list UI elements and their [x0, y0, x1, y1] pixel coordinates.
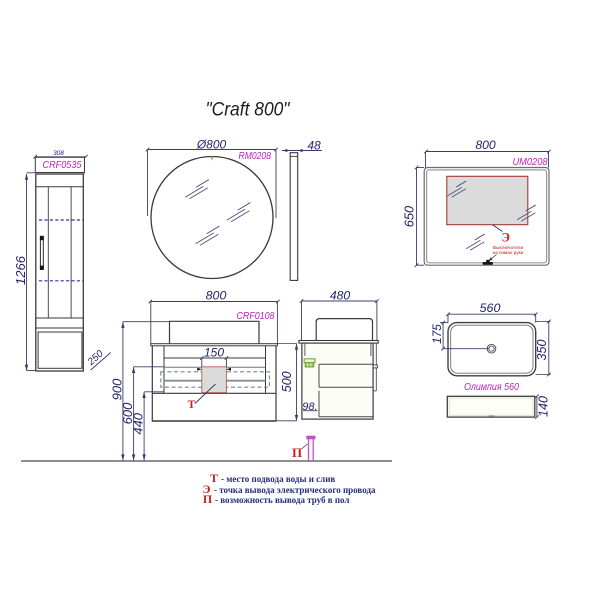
svg-text:Т: Т — [188, 399, 196, 411]
svg-text:на взмах руки: на взмах руки — [493, 251, 524, 256]
svg-text:CRF0108: CRF0108 — [237, 310, 275, 322]
svg-text:308: 308 — [53, 150, 64, 157]
svg-text:800: 800 — [206, 288, 227, 302]
svg-text:- точка вывода электрического: - точка вывода электрического провода — [214, 485, 376, 495]
svg-text:560: 560 — [480, 301, 501, 315]
svg-text:140: 140 — [536, 396, 550, 417]
svg-text:П: П — [203, 492, 213, 506]
svg-text:UM0208: UM0208 — [513, 156, 548, 168]
svg-text:48: 48 — [307, 139, 321, 153]
svg-text:1266: 1266 — [13, 255, 28, 285]
svg-text:150: 150 — [204, 345, 224, 359]
svg-text:Ø800: Ø800 — [196, 138, 227, 152]
svg-text:250: 250 — [85, 348, 106, 368]
svg-text:98.: 98. — [302, 401, 317, 413]
svg-text:- возможность вывода труб в по: - возможность вывода труб в пол — [215, 495, 349, 505]
svg-text:440: 440 — [131, 412, 146, 434]
svg-text:480: 480 — [330, 288, 351, 302]
svg-text:"Craft 800": "Craft 800" — [206, 99, 291, 121]
svg-text:650: 650 — [401, 205, 416, 227]
svg-text:П: П — [292, 445, 302, 460]
svg-text:350: 350 — [535, 340, 549, 361]
svg-text:500: 500 — [280, 371, 294, 392]
svg-text:175: 175 — [430, 324, 444, 344]
svg-text:- место подвода воды и слив: - место подвода воды и слив — [221, 474, 335, 484]
svg-text:CRF0535: CRF0535 — [43, 159, 82, 171]
svg-text:Олимпия 560: Олимпия 560 — [464, 382, 519, 393]
svg-text:Э: Э — [501, 230, 509, 244]
svg-text:800: 800 — [475, 138, 496, 152]
svg-text:Т: Т — [210, 471, 218, 485]
svg-text:900: 900 — [109, 378, 124, 400]
svg-text:RM0208: RM0208 — [239, 151, 272, 162]
